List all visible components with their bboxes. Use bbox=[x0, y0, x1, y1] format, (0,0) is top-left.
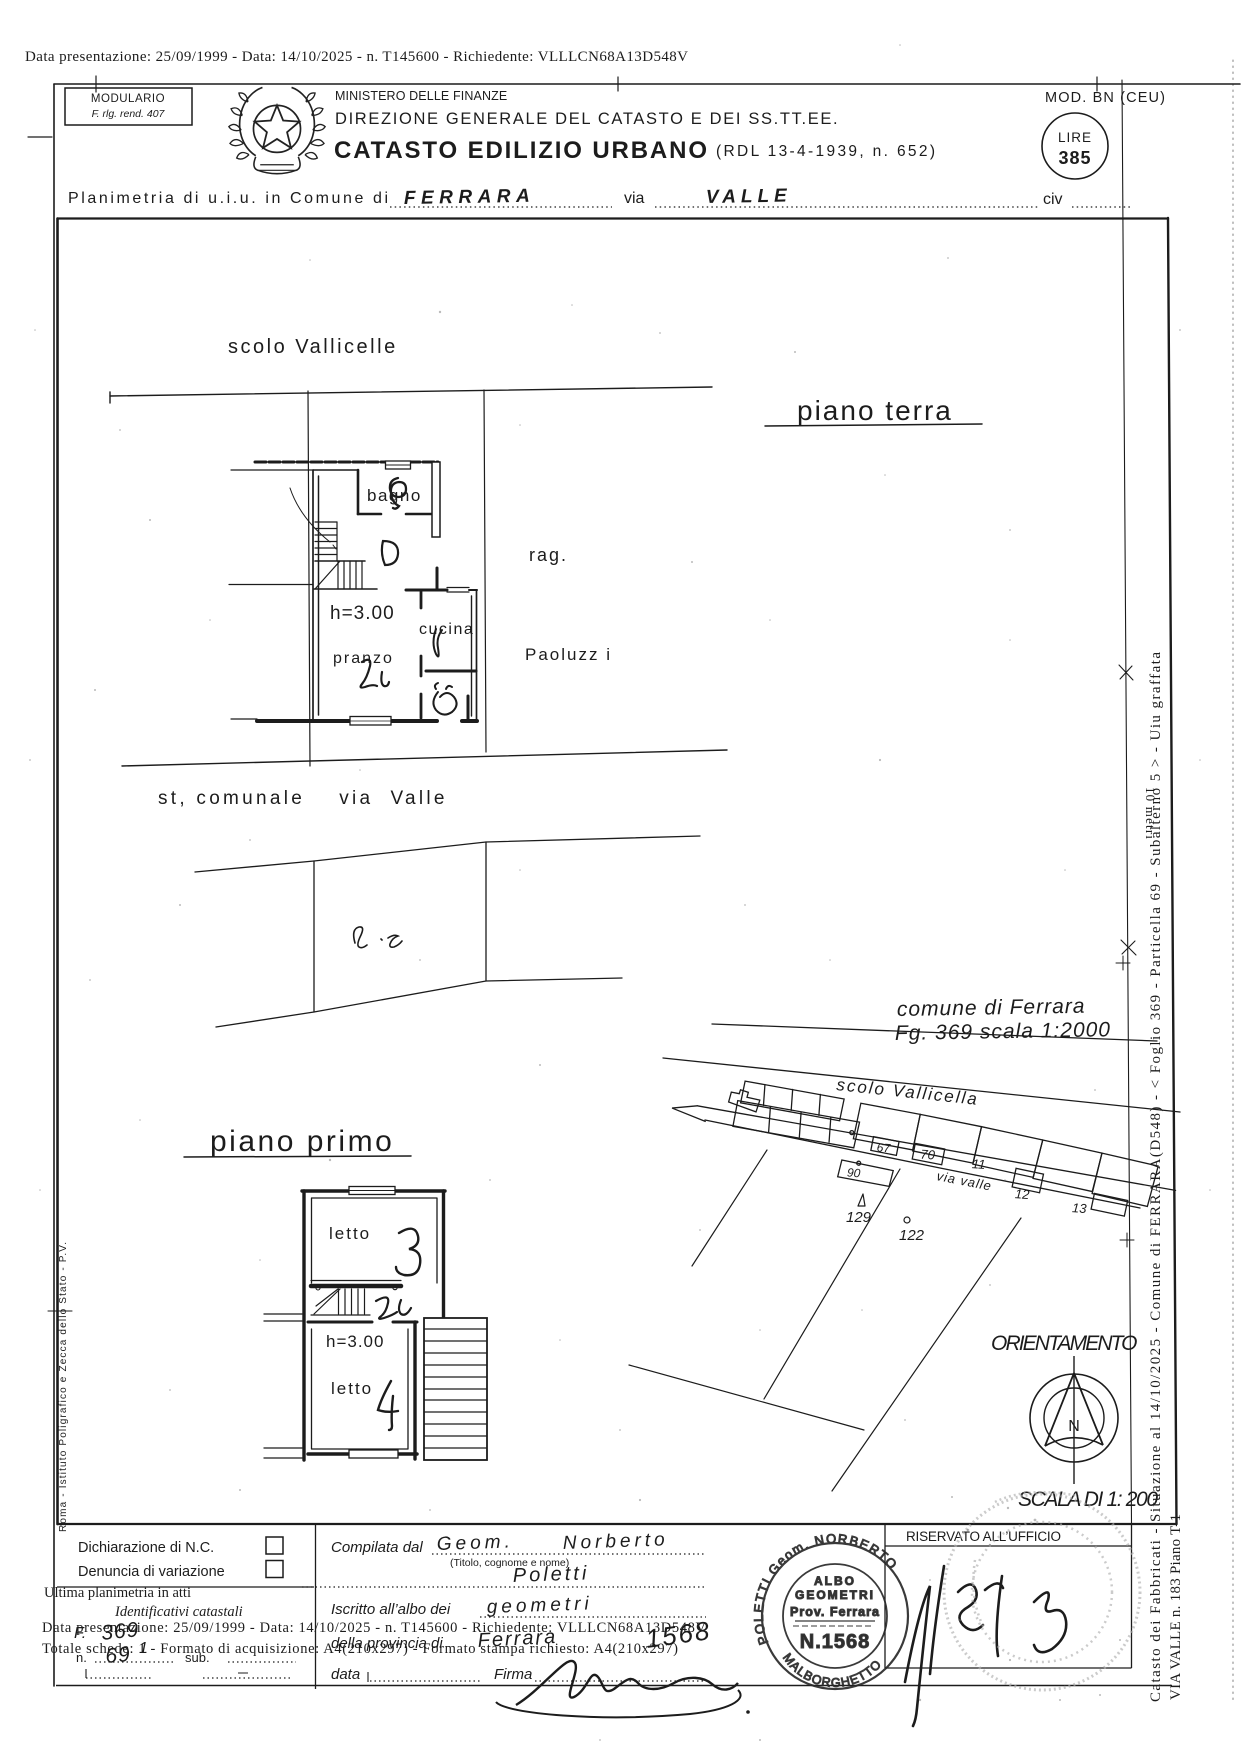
svg-text:Denuncia di variazione: Denuncia di variazione bbox=[78, 1564, 225, 1580]
svg-text:RISERVATO ALL’UFFICIO: RISERVATO ALL’UFFICIO bbox=[906, 1529, 1062, 1544]
svg-text:h=3.00: h=3.00 bbox=[326, 1332, 384, 1351]
svg-text:Roma - Istituto Poligrafico e: Roma - Istituto Poligrafico e Zecca dell… bbox=[58, 1242, 69, 1532]
svg-text:CATASTO EDILIZIO URBANO: CATASTO EDILIZIO URBANO bbox=[334, 137, 708, 164]
svg-text:h=3.00: h=3.00 bbox=[330, 603, 395, 624]
svg-text:data: data bbox=[331, 1666, 360, 1683]
svg-text:comune di Ferrara: comune di Ferrara bbox=[897, 995, 1086, 1021]
svg-text:Poletti: Poletti bbox=[512, 1562, 589, 1587]
svg-text:DIREZIONE GENERALE DEL CATASTO: DIREZIONE GENERALE DEL CATASTO E DEI SS.… bbox=[335, 110, 838, 128]
svg-text:12: 12 bbox=[1014, 1186, 1030, 1202]
svg-text:69: 69 bbox=[104, 1643, 131, 1668]
svg-text:scolo Vallicella: scolo Vallicella bbox=[836, 1075, 980, 1109]
svg-text:N: N bbox=[1068, 1418, 1080, 1435]
svg-text:Paoluzz і: Paoluzz і bbox=[525, 645, 612, 664]
svg-text:VIA VALLE n. 183 Piano T-1: VIA VALLE n. 183 Piano T-1 bbox=[1168, 1514, 1184, 1700]
svg-text:via: via bbox=[624, 190, 645, 207]
svg-text:letto: letto bbox=[329, 1224, 371, 1243]
svg-text:(RDL 13-4-1939, n. 652): (RDL 13-4-1939, n. 652) bbox=[716, 143, 935, 160]
svg-text:n.: n. bbox=[76, 1650, 87, 1665]
svg-text:civ: civ bbox=[1043, 191, 1063, 208]
svg-text:VALLE: VALLE bbox=[706, 186, 792, 208]
svg-text:Data presentazione: 25/09/1999: Data presentazione: 25/09/1999 - Data: 1… bbox=[42, 1620, 707, 1636]
svg-text:Norberto: Norberto bbox=[562, 1529, 669, 1554]
svg-text:N.1568: N.1568 bbox=[800, 1631, 871, 1653]
svg-text:MODULARIO: MODULARIO bbox=[91, 93, 165, 105]
svg-text:Ferrara: Ferrara bbox=[477, 1626, 558, 1652]
svg-text:Compilata dal: Compilata dal bbox=[331, 1539, 423, 1556]
svg-text:FERRARA: FERRARA bbox=[404, 186, 536, 209]
svg-text:Prov. Ferrara: Prov. Ferrara bbox=[790, 1605, 880, 1619]
svg-text:letto: letto bbox=[331, 1379, 373, 1398]
svg-text:122: 122 bbox=[899, 1227, 925, 1244]
svg-text:sub.: sub. bbox=[185, 1650, 210, 1665]
svg-text:ALBO: ALBO bbox=[814, 1574, 856, 1588]
svg-text:MOD. BN (CEU): MOD. BN (CEU) bbox=[1045, 90, 1165, 106]
svg-text:Data presentazione: 25/09/1999: Data presentazione: 25/09/1999 - Data: 1… bbox=[25, 49, 688, 65]
svg-text:90: 90 bbox=[847, 1165, 862, 1180]
svg-text:1: 1 bbox=[139, 1640, 148, 1657]
svg-text:geometri: geometri bbox=[486, 1593, 593, 1618]
svg-text:Firma: Firma bbox=[494, 1666, 532, 1683]
svg-text:369: 369 bbox=[100, 1618, 140, 1645]
svg-text:F. rlg. rend. 407: F. rlg. rend. 407 bbox=[92, 108, 166, 120]
svg-text:129: 129 bbox=[846, 1209, 872, 1226]
svg-text:Iscritto all’albo dei: Iscritto all’albo dei bbox=[331, 1601, 451, 1618]
svg-text:385: 385 bbox=[1058, 148, 1091, 168]
svg-text:cucina: cucina bbox=[419, 621, 474, 638]
svg-text:Planimetria di u.i.u. in Comun: Planimetria di u.i.u. in Comune di bbox=[68, 190, 388, 207]
svg-text:st, comunale via Valle: st, comunale via Valle bbox=[158, 788, 446, 809]
svg-text:13: 13 bbox=[1072, 1200, 1088, 1216]
svg-text:piano primo: piano primo bbox=[210, 1125, 394, 1158]
svg-text:Geom.: Geom. bbox=[436, 1531, 514, 1555]
svg-text:10 metri: 10 metri bbox=[1143, 787, 1158, 839]
svg-text:MINISTERO DELLE FINANZE: MINISTERO DELLE FINANZE bbox=[335, 89, 508, 103]
svg-text:11: 11 bbox=[971, 1156, 986, 1172]
svg-text:Ultima planimetria in atti: Ultima planimetria in atti bbox=[44, 1585, 191, 1601]
svg-text:rag.: rag. bbox=[529, 545, 568, 565]
svg-text:scolo Vallicelle: scolo Vallicelle bbox=[228, 336, 398, 358]
svg-text:piano terra: piano terra bbox=[797, 395, 953, 426]
svg-text:Identificativi catastali: Identificativi catastali bbox=[114, 1604, 243, 1620]
svg-text:via valle: via valle bbox=[935, 1168, 993, 1193]
svg-text:pranzo: pranzo bbox=[333, 650, 394, 667]
svg-text:67: 67 bbox=[876, 1140, 892, 1155]
svg-text:GEOMETRI: GEOMETRI bbox=[795, 1588, 875, 1602]
svg-text:della provincia di: della provincia di bbox=[331, 1635, 443, 1652]
svg-text:Dichiarazione di N.C.: Dichiarazione di N.C. bbox=[78, 1540, 214, 1556]
svg-text:ORIENTAMENTO: ORIENTAMENTO bbox=[991, 1332, 1139, 1355]
svg-text:LIRE: LIRE bbox=[1058, 130, 1092, 145]
svg-text:F.: F. bbox=[74, 1625, 86, 1642]
svg-text:70: 70 bbox=[920, 1147, 936, 1163]
